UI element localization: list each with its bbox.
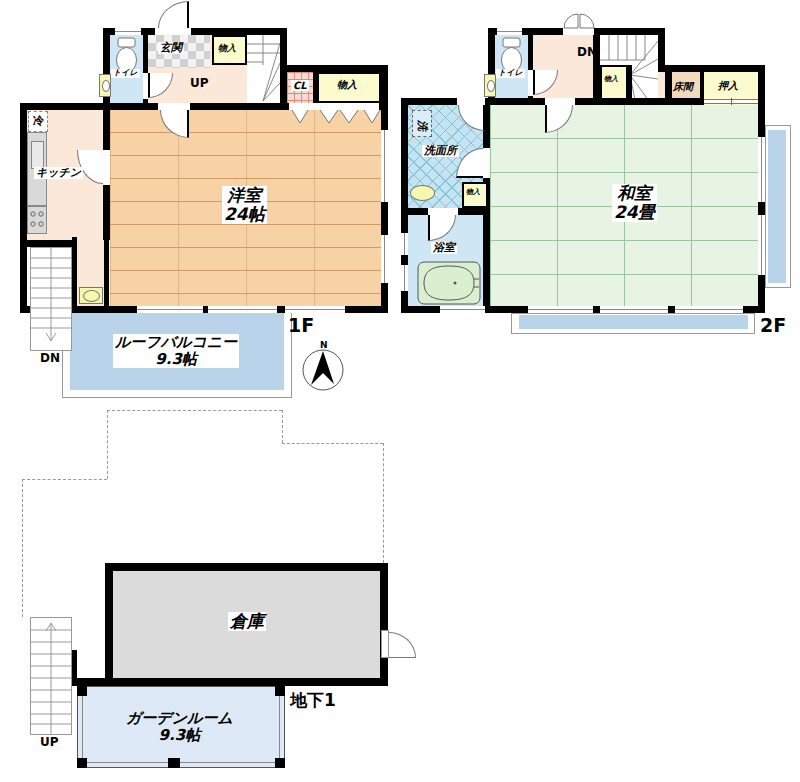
2f-oshiire-label: 押入 bbox=[716, 80, 740, 91]
garden-post bbox=[168, 758, 180, 768]
1f-wall-hallstrip-left bbox=[72, 237, 77, 313]
sink-bowl-icon bbox=[102, 80, 110, 92]
2f-laundry-label: 洗 bbox=[415, 120, 430, 131]
garden-window-line-right bbox=[279, 693, 280, 763]
2f-balcony-right bbox=[768, 130, 786, 283]
1f-window-right-1 bbox=[381, 130, 388, 202]
1f-wall-main-left bbox=[20, 103, 27, 313]
1f-cl-label: CL bbox=[291, 80, 309, 91]
stairs-up-icon bbox=[31, 618, 71, 734]
2f-hall-washitsu-gap bbox=[545, 98, 575, 105]
fridge-icon: 冷 bbox=[28, 111, 48, 132]
1f-balcony-size: 9.3帖 bbox=[115, 351, 237, 368]
2f-washroom-washitsu-gap bbox=[483, 148, 490, 178]
1f-room-name: 洋室 bbox=[224, 186, 265, 205]
compass-icon: N bbox=[298, 338, 348, 394]
2f-window-right-1 bbox=[758, 137, 765, 202]
1f-window-right-2 bbox=[381, 235, 388, 283]
2f-bath-window-2 bbox=[401, 265, 408, 291]
garden-post bbox=[77, 686, 87, 696]
1f-wall-entrance-right bbox=[280, 28, 287, 110]
2f-hall-washroom-gap bbox=[457, 98, 485, 105]
footprint-dash bbox=[22, 479, 23, 617]
1f-front-door-arc bbox=[158, 1, 189, 28]
2f-top-door-gap bbox=[563, 28, 594, 35]
2f-room-label: 和室 24畳 bbox=[612, 184, 657, 222]
folding-door-icon bbox=[288, 109, 382, 125]
stairs-up-icon bbox=[247, 35, 280, 103]
2f-window-right-2 bbox=[758, 215, 765, 275]
2f-wall-hall-stairs bbox=[593, 35, 600, 105]
1f-closet-right-label: 物入 bbox=[335, 79, 359, 90]
2f-window-bottom-1 bbox=[528, 306, 593, 313]
floor-plan-canvas: トイレ 玄関 物入 UP bbox=[0, 0, 800, 782]
1f-wall-kitchen-div-lower bbox=[103, 185, 110, 240]
1f-room-size: 24帖 bbox=[224, 205, 265, 224]
2f-bath-door-gap bbox=[428, 208, 458, 215]
washer-icon: 洗 bbox=[412, 110, 432, 137]
b1-garden-size: 9.3帖 bbox=[126, 727, 233, 744]
basin-oval-icon bbox=[83, 290, 100, 302]
1f-wall-kitchen-div-upper bbox=[103, 110, 110, 150]
compass-north-label: N bbox=[320, 340, 328, 350]
1f-wall-kitchen-bottom bbox=[20, 240, 77, 247]
2f-toilet-room bbox=[495, 35, 528, 98]
1f-window-bottom-1 bbox=[137, 306, 203, 313]
1f-fridge-label: 冷 bbox=[31, 115, 46, 127]
2f-room-size: 24畳 bbox=[614, 203, 655, 222]
b1-floor-label: 地下1 bbox=[290, 692, 336, 709]
b1-garden-name: ガーデンルーム bbox=[126, 710, 233, 727]
1f-floor-label: 1F bbox=[288, 316, 314, 335]
double-door-icon bbox=[563, 13, 595, 29]
2f-washroom-label: 洗面所 bbox=[422, 145, 459, 157]
1f-wall-entrance-left bbox=[103, 28, 110, 110]
1f-hall-door-gap bbox=[158, 103, 190, 110]
1f-toilet-window bbox=[115, 28, 141, 35]
1f-ext-stairs bbox=[30, 247, 72, 351]
2f-bathroom-label: 浴室 bbox=[431, 242, 457, 254]
1f-window-bottom-2 bbox=[208, 306, 277, 313]
1f-balcony-name: ルーフバルコニー bbox=[115, 334, 237, 351]
2f-wall-block-right bbox=[658, 28, 665, 72]
2f-closet-hall-label: 物入 bbox=[602, 76, 620, 84]
b1-warehouse-label: 倉庫 bbox=[228, 612, 266, 631]
2f-toilet-window bbox=[497, 28, 522, 35]
1f-balcony-label: ルーフバルコニー 9.3帖 bbox=[113, 334, 239, 368]
sliding-door-icon bbox=[704, 99, 758, 104]
1f-front-door-gap bbox=[155, 28, 191, 35]
garden-post bbox=[275, 758, 285, 768]
sink-bowl-icon bbox=[487, 80, 495, 92]
2f-hand-sink bbox=[484, 74, 496, 97]
kitchen-sink-icon bbox=[31, 141, 44, 169]
2f-bath-window-bottom bbox=[440, 306, 485, 313]
2f-tokonoma-label: 床間 bbox=[671, 81, 695, 92]
vanity-sink-icon bbox=[410, 185, 435, 201]
1f-basin bbox=[79, 287, 103, 304]
b1-warehouse-door-leaf bbox=[381, 630, 389, 658]
2f-closet-washroom-label: 物入 bbox=[464, 189, 482, 197]
2f-wall-ext-top bbox=[665, 65, 765, 72]
b1-wall-garden-top bbox=[70, 678, 110, 686]
footprint-dash bbox=[107, 410, 108, 479]
2f-bath-window-1 bbox=[401, 233, 408, 255]
2f-floor-label: 2F bbox=[760, 316, 786, 335]
footprint-dash bbox=[22, 479, 107, 480]
2f-balcony-bottom bbox=[519, 315, 748, 329]
1f-stairs-up bbox=[247, 35, 280, 103]
1f-genkan-label: 玄関 bbox=[158, 42, 184, 54]
1f-up-label: UP bbox=[190, 77, 209, 89]
b1-garden-label: ガーデンルーム 9.3帖 bbox=[124, 710, 235, 744]
footprint-dash bbox=[107, 410, 282, 411]
1f-hand-sink bbox=[99, 74, 111, 97]
footprint-dash bbox=[383, 443, 384, 563]
bathtub-icon bbox=[417, 261, 481, 305]
footprint-dash bbox=[282, 410, 283, 443]
2f-toilet-label: トイレ bbox=[496, 69, 525, 78]
b1-stairs-up bbox=[30, 617, 72, 735]
garden-window-line-bottom bbox=[84, 762, 280, 763]
1f-wall-ext-top bbox=[287, 65, 388, 72]
footprint-dash bbox=[282, 443, 383, 444]
1f-window-bottom-3 bbox=[285, 306, 345, 313]
1f-room-label: 洋室 24帖 bbox=[222, 186, 267, 224]
1f-dn-label: DN bbox=[40, 352, 60, 364]
stove-icon bbox=[27, 206, 47, 234]
b1-warehouse-door-arc bbox=[389, 632, 416, 658]
b1-up-label: UP bbox=[40, 736, 59, 748]
1f-wall-hallstrip-right bbox=[104, 240, 109, 306]
2f-room-name: 和室 bbox=[614, 184, 655, 203]
1f-kitchen-door-gap bbox=[103, 150, 110, 185]
1f-toilet-label: トイレ bbox=[111, 69, 140, 78]
1f-closet-top-label: 物入 bbox=[216, 43, 238, 53]
1f-kitchen-label: キッチン bbox=[34, 167, 83, 179]
garden-post bbox=[77, 758, 87, 768]
stairs-dn-icon bbox=[31, 248, 71, 350]
2f-window-bottom-3 bbox=[675, 306, 743, 313]
2f-wall-wash-washitsu bbox=[483, 105, 490, 313]
garden-post bbox=[275, 686, 285, 696]
garden-window-line-left bbox=[82, 693, 83, 763]
2f-window-bottom-2 bbox=[600, 306, 668, 313]
